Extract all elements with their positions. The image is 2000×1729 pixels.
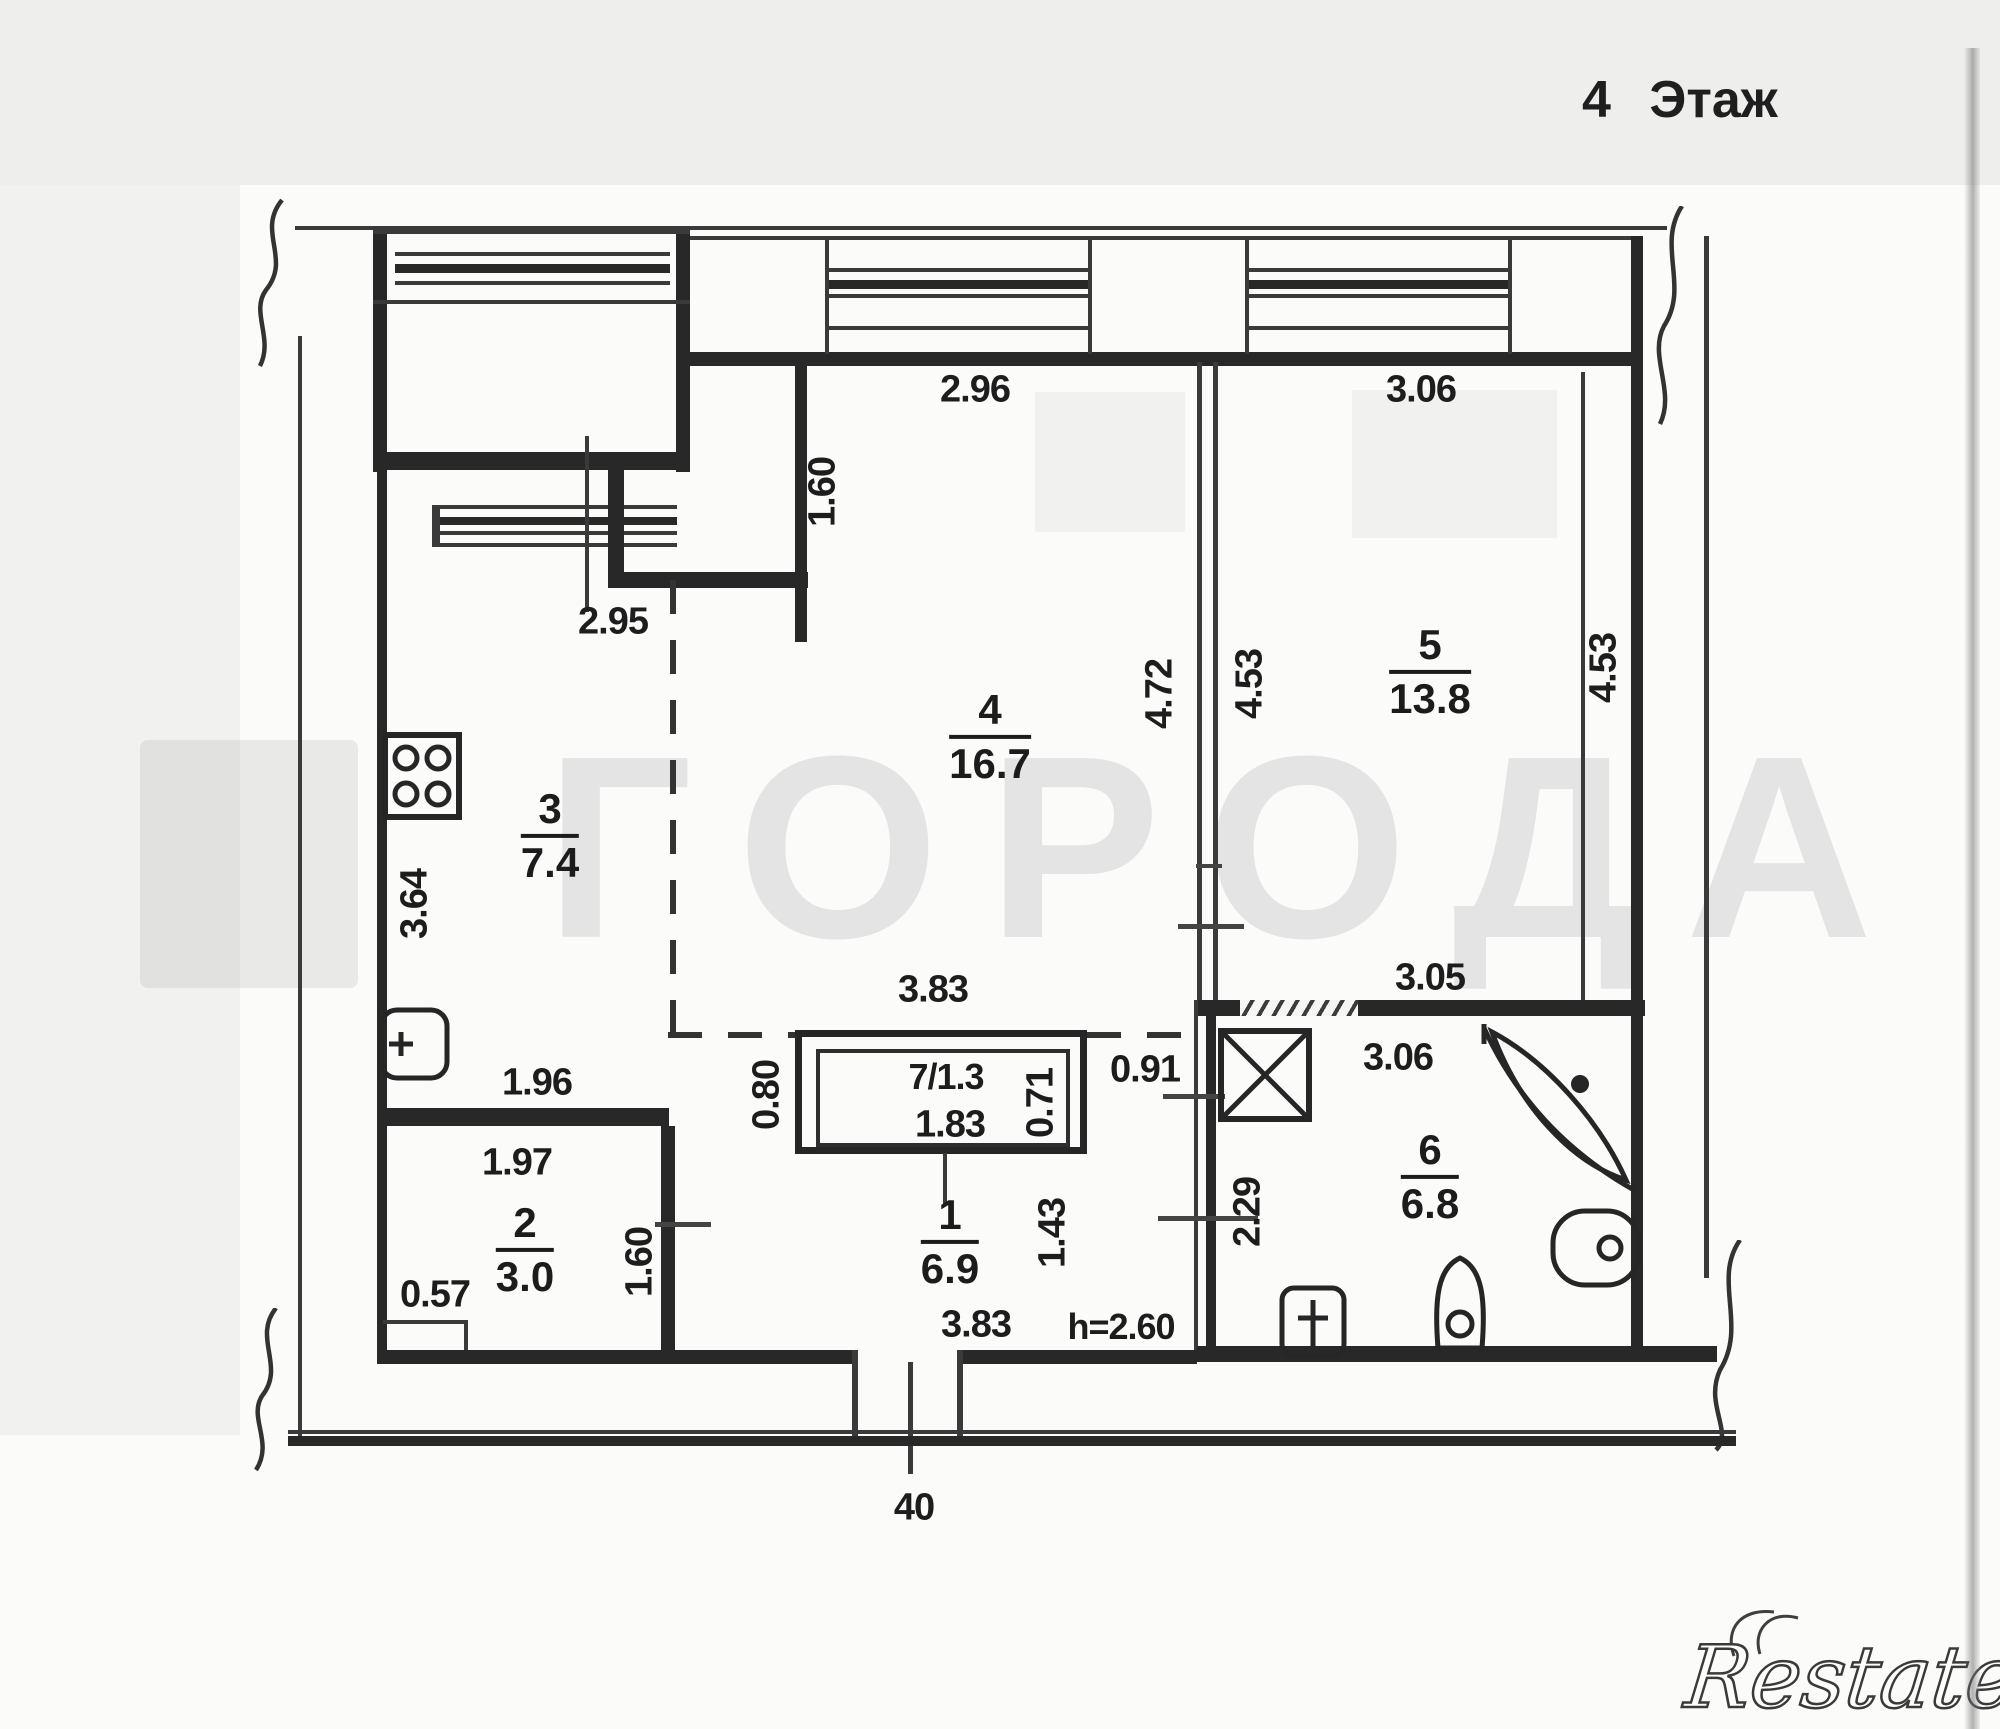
wall-segment [373,300,690,304]
dim-room4-width: 3.83 [898,969,968,1012]
window-glazing-line [827,326,1092,330]
window-glazing-line [1247,268,1512,272]
dim-bath-height: 2.29 [1227,1177,1270,1247]
dim-room2-height: 1.60 [619,1227,662,1297]
scan-shading [1352,390,1557,538]
dim-kitchen-height: 3.64 [394,869,437,939]
dashed-partition-line [670,580,676,1032]
window-jamb-line [825,236,829,354]
wall-segment [383,1320,468,1324]
wall-segment [676,230,690,472]
wall-segment [1704,236,1709,1278]
dim-room5-height-left: 4.53 [1229,649,1272,719]
dim-passage-width: 0.91 [1110,1049,1180,1092]
dim-closet-depth: 0.80 [746,1060,789,1130]
dim-kitchen-width: 2.95 [578,601,648,644]
dimension-tick [1196,864,1222,868]
window-jamb-line [1088,236,1092,354]
room-label-2: 2 3.0 [496,1201,554,1299]
room-label-7: 7/1.3 [908,1056,983,1098]
wall-segment [963,1350,1197,1364]
break-squiggle-icon [246,1308,302,1472]
dim-bath-width: 3.06 [1363,1037,1433,1080]
washing-machine-icon [1216,1026,1314,1124]
page-edge-line [1964,48,1980,1729]
room-number: 1 [921,1193,979,1244]
dimension-tick [1178,924,1244,929]
room-label-6: 6 6.8 [1401,1128,1459,1226]
room-area: 3.0 [496,1252,554,1299]
towel-heater-icon [1278,1284,1350,1360]
dim-window4-width: 2.96 [940,369,1010,412]
dim-niche-height: 1.60 [802,457,845,527]
room-area: 13.8 [1389,674,1471,721]
room-area: 16.7 [949,739,1031,786]
window-glazing-line [395,252,670,256]
wall-segment [690,236,1643,240]
room-label-3: 3 7.4 [521,787,579,885]
dashed-partition-line [668,1032,798,1038]
stove-icon [381,731,463,821]
kitchen-sink-icon [377,1006,451,1082]
window-glazing-line [827,280,1092,289]
dim-closet-height: 0.71 [1020,1068,1063,1138]
scan-shading [1035,392,1185,532]
window-glazing-line [1247,326,1512,330]
room-label-1: 1 6.9 [921,1193,979,1291]
room-number: 4 [949,688,1031,739]
wall-segment [1206,1000,1216,1350]
room-number: 6 [1401,1128,1459,1179]
break-squiggle-icon [1646,206,1698,426]
hatched-wall-opening [1240,1000,1358,1016]
dim-room4-height: 4.72 [1139,659,1182,729]
watermark-logo-block [140,740,358,988]
dim-closet-width: 1.83 [915,1104,985,1147]
window-jamb-line [1508,236,1512,354]
room-area: 6.8 [1401,1179,1459,1226]
wall-segment [690,352,1643,366]
wall-segment [432,505,440,547]
wall-segment [1194,1000,1198,1350]
wall-segment [373,230,690,234]
window-glazing-line [432,505,677,509]
wall-segment [288,1430,1736,1434]
restate-logo-text: Restate [1681,1628,2000,1728]
wash-basin-icon [1548,1206,1644,1290]
door-leaf-line [908,1362,913,1474]
room-label-5: 5 13.8 [1389,623,1471,721]
dimension-tick [655,1222,711,1227]
wall-segment [377,1108,669,1126]
room-label-4: 4 16.7 [949,688,1031,786]
dim-room2-south: 0.57 [400,1274,470,1317]
window-glazing-line [1247,280,1512,289]
dim-room2-width: 1.97 [482,1142,552,1185]
window-glazing-line [827,294,1092,298]
toilet-icon [1424,1254,1496,1354]
window-glazing-line [395,281,670,285]
dim-hall-height: 1.43 [1032,1198,1075,1268]
wall-segment [608,572,808,588]
page-title: 4 Этаж [1582,70,1778,130]
dimension-line [585,436,589,612]
dim-hall-width: 3.83 [941,1304,1011,1347]
room-area: 6.9 [921,1244,979,1291]
dim-room5-height-right: 4.53 [1583,633,1626,703]
room-area: 7.4 [521,838,579,885]
wall-segment [1213,362,1218,1002]
window-glazing-line [432,531,677,535]
dim-bath-top-width: 3.05 [1395,957,1465,1000]
window-glazing-line [1247,294,1512,298]
wall-segment [1197,362,1202,1002]
window-glazing-line [395,264,670,273]
room-number: 5 [1389,623,1471,674]
watermark-text: ГОРОДА [545,718,1921,978]
window-glazing-line [827,268,1092,272]
door-jamb-line [852,1350,858,1436]
wall-segment [288,1436,1736,1446]
dim-entry-wall: 40 [894,1487,934,1530]
wall-segment [377,1350,857,1364]
floor-plan-page: ГОРОДА 4 Этаж [0,0,2000,1729]
window-glazing-line [432,517,677,525]
wall-segment [298,336,302,1436]
room-number: 3 [521,787,579,838]
wall-segment [661,1126,675,1364]
door-jamb-line [957,1350,963,1436]
wall-segment [373,452,690,470]
dim-kitchen-south: 1.96 [502,1062,572,1105]
dim-ceiling-height: h=2.60 [1067,1306,1174,1348]
dim-window5-width: 3.06 [1386,369,1456,412]
corner-bath-icon [1478,1022,1638,1194]
window-glazing-line [432,543,677,547]
break-squiggle-icon [248,198,304,368]
wall-segment [373,230,387,472]
room-number: 2 [496,1201,554,1252]
wall-segment [608,458,624,572]
wall-segment [377,452,387,1364]
dashed-partition-line [1087,1032,1195,1038]
window-jamb-line [1245,236,1249,354]
